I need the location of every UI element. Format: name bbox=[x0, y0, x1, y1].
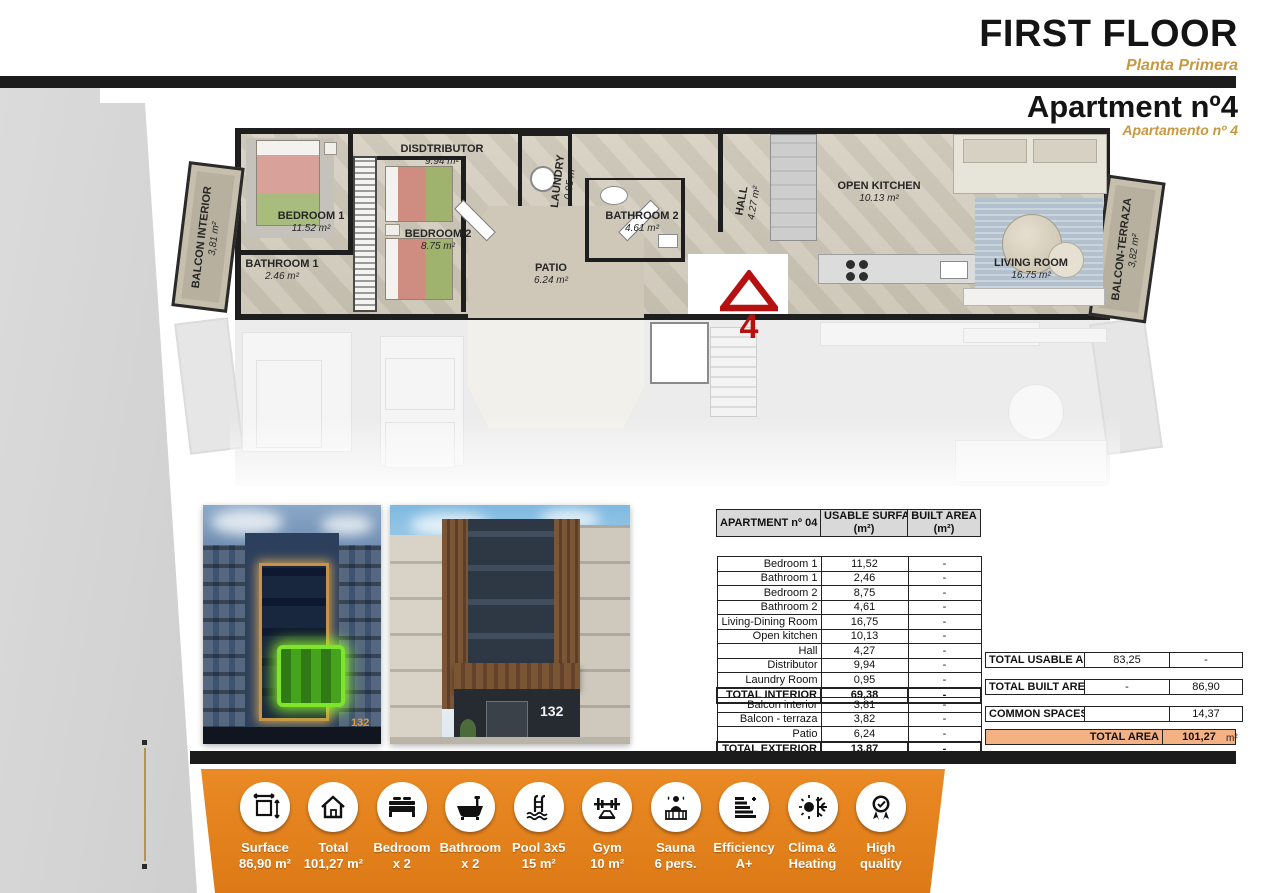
total-area-table: TOTAL AREA101,27 bbox=[985, 729, 1236, 745]
amenity-efficiency: EfficiencyA+ bbox=[710, 782, 778, 893]
total-area-unit: m² bbox=[1226, 733, 1238, 744]
row-built: - bbox=[908, 571, 981, 586]
row-built: - bbox=[908, 557, 981, 572]
row-usable: 6,24 bbox=[821, 727, 908, 742]
row-built: - bbox=[908, 673, 981, 688]
exterior-rooms-table: Balcon interior3,81- Balcon - terraza3,8… bbox=[716, 697, 982, 758]
amenity-label: Gym bbox=[593, 840, 622, 855]
flyer-page: FIRST FLOOR Planta Primera Apartment nº4… bbox=[0, 0, 1270, 893]
room-name: OPEN KITCHEN bbox=[837, 180, 920, 192]
ghost-tv-bench bbox=[963, 328, 1107, 343]
row-label: Bedroom 2 bbox=[717, 586, 821, 601]
room-label-patio: PATIO 6.24 m² bbox=[534, 262, 568, 286]
row-label: Laundry Room bbox=[717, 673, 821, 688]
building-photo-day: 132 bbox=[390, 505, 630, 744]
sofa-cushion bbox=[1033, 139, 1097, 163]
row-built: - bbox=[908, 712, 981, 727]
amenity-label: High bbox=[866, 840, 895, 855]
table-col-usable: USABLE SURFACE (m²) bbox=[821, 510, 908, 537]
room-label-bathroom1: BATHROOM 1 2.46 m² bbox=[245, 258, 318, 282]
floor-plan: 4 BALCON INTERIOR 3,81 m² BEDROOM 1 11.5… bbox=[180, 122, 1170, 504]
amenity-surface: Surface86,90 m² bbox=[231, 782, 299, 893]
amenity-label: Clima & bbox=[788, 840, 836, 855]
row-label: Bedroom 1 bbox=[717, 557, 821, 572]
side-building bbox=[580, 525, 630, 744]
room-label-open-kitchen: OPEN KITCHEN 10.13 m² bbox=[837, 180, 920, 204]
row-usable: 16,75 bbox=[821, 615, 908, 630]
table-row: Open kitchen10,13- bbox=[717, 629, 981, 644]
table-row: Bathroom 24,61- bbox=[717, 600, 981, 615]
wall bbox=[237, 250, 353, 255]
pavement bbox=[390, 737, 630, 744]
apartment-title: Apartment nº4 bbox=[1027, 89, 1238, 125]
ghost-fade bbox=[230, 417, 1120, 507]
header-divider-bar bbox=[0, 76, 1236, 88]
row-label: Patio bbox=[717, 727, 821, 742]
amenity-value: x 2 bbox=[461, 856, 479, 871]
wardrobe bbox=[353, 156, 377, 312]
table-row: COMMON SPACES14,37 bbox=[986, 707, 1243, 722]
table-row: Hall4,27- bbox=[717, 644, 981, 659]
nightstand bbox=[324, 142, 337, 155]
tv-bench bbox=[963, 288, 1105, 306]
amenity-sauna: Sauna6 pers. bbox=[642, 782, 710, 893]
amenity-bedroom: Bedroomx 2 bbox=[368, 782, 436, 893]
fold-mark-line bbox=[144, 748, 146, 861]
table-row: TOTAL BUILT AREA-86,90 bbox=[986, 680, 1243, 695]
col-usable-line1: USABLE SURFACE bbox=[824, 510, 904, 523]
fold-mark bbox=[142, 740, 147, 745]
row-built: - bbox=[908, 629, 981, 644]
col-usable-line2: (m²) bbox=[824, 523, 904, 536]
left-shade-panel bbox=[0, 88, 200, 893]
room-area: 10.13 m² bbox=[837, 193, 920, 205]
row-built: - bbox=[908, 658, 981, 673]
room-area: 8.75 m² bbox=[405, 241, 472, 253]
nightstand bbox=[385, 224, 400, 236]
amenity-value: 86,90 m² bbox=[239, 856, 291, 871]
row-built: - bbox=[908, 727, 981, 742]
interior-rooms-table: Bedroom 111,52- Bathroom 12,46- Bedroom … bbox=[716, 556, 982, 704]
row-label: Distributor bbox=[717, 658, 821, 673]
row-built: - bbox=[1170, 653, 1243, 668]
col-built-line1: BUILT AREA bbox=[911, 510, 977, 523]
kitchen-sink bbox=[940, 261, 968, 279]
cloud bbox=[211, 509, 283, 535]
hob-burner bbox=[859, 260, 868, 269]
page-title: FIRST FLOOR bbox=[979, 13, 1238, 56]
side-building bbox=[203, 545, 245, 744]
table-row: Balcon - terraza3,82- bbox=[717, 712, 981, 727]
amenity-label: Sauna bbox=[656, 840, 695, 855]
table-row: Bathroom 12,46- bbox=[717, 571, 981, 586]
amenity-label: Pool 3x5 bbox=[512, 840, 565, 855]
row-label: Bathroom 1 bbox=[717, 571, 821, 586]
row-usable: 10,13 bbox=[821, 629, 908, 644]
hob-burner bbox=[846, 260, 855, 269]
row-built: - bbox=[908, 698, 981, 713]
area-table-header: APARTMENT nº 04 USABLE SURFACE (m²) BUIL… bbox=[716, 509, 981, 537]
table-row: Bedroom 28,75- bbox=[717, 586, 981, 601]
row-label: Open kitchen bbox=[717, 629, 821, 644]
amenity-value: 6 pers. bbox=[655, 856, 697, 871]
pool-icon bbox=[514, 782, 564, 832]
room-name: DISDTRIBUTOR bbox=[401, 143, 484, 155]
ghost-bed bbox=[385, 358, 455, 410]
bedroom2-bed bbox=[385, 166, 453, 222]
amenity-label: Total bbox=[318, 840, 348, 855]
total-built-table: TOTAL BUILT AREA-86,90 bbox=[985, 679, 1243, 695]
row-built: - bbox=[908, 586, 981, 601]
amenity-value: quality bbox=[860, 856, 902, 871]
side-building bbox=[339, 545, 381, 744]
efficiency-icon bbox=[719, 782, 769, 832]
quality-badge-icon bbox=[856, 782, 906, 832]
row-usable: 8,75 bbox=[821, 586, 908, 601]
row-label: TOTAL AREA bbox=[986, 730, 1163, 745]
room-name: LIVING ROOM bbox=[994, 257, 1068, 269]
cloud bbox=[321, 515, 373, 535]
fold-mark bbox=[142, 864, 147, 869]
row-usable: 9,94 bbox=[821, 658, 908, 673]
sauna-icon bbox=[651, 782, 701, 832]
row-label: COMMON SPACES bbox=[986, 707, 1085, 722]
amenities-bar: Surface86,90 m² Total101,27 m² bbox=[195, 769, 945, 893]
room-name: BEDROOM 1 bbox=[278, 210, 345, 222]
table-col-built: BUILT AREA (m²) bbox=[908, 510, 981, 537]
surface-icon bbox=[240, 782, 290, 832]
unit-number: 4 bbox=[737, 308, 761, 347]
ghost-patio bbox=[468, 320, 644, 428]
row-label: Balcon - terraza bbox=[717, 712, 821, 727]
room-label-distributor: DISDTRIBUTOR 9.94 m² bbox=[401, 143, 484, 167]
house-icon bbox=[308, 782, 358, 832]
row-label: Bathroom 2 bbox=[717, 600, 821, 615]
room-label-bathroom2: BATHROOM 2 4.61 m² bbox=[605, 210, 678, 234]
table-row: Living-Dining Room16,75- bbox=[717, 615, 981, 630]
wall bbox=[718, 132, 723, 232]
row-usable: - bbox=[1085, 680, 1170, 695]
row-usable: 3,82 bbox=[821, 712, 908, 727]
room-area: 4.61 m² bbox=[605, 223, 678, 235]
sink bbox=[658, 234, 678, 248]
elevator-shaft bbox=[650, 322, 709, 384]
table-row: TOTAL USABLE AREA83,25- bbox=[986, 653, 1243, 668]
room-name: PATIO bbox=[535, 262, 567, 274]
row-usable: 2,46 bbox=[821, 571, 908, 586]
room-area: 6.24 m² bbox=[534, 275, 568, 287]
wood-canopy bbox=[454, 663, 580, 689]
total-area-row: TOTAL AREA101,27 bbox=[986, 730, 1236, 745]
footer-divider-bar bbox=[190, 751, 1236, 764]
row-usable: 83,25 bbox=[1085, 653, 1170, 668]
amenity-value: A+ bbox=[736, 856, 753, 871]
amenity-value: Heating bbox=[789, 856, 837, 871]
table-row: Laundry Room0,95- bbox=[717, 673, 981, 688]
amenity-bathroom: Bathroomx 2 bbox=[436, 782, 504, 893]
room-name: BATHROOM 2 bbox=[605, 210, 678, 222]
highlighted-apartment-box bbox=[277, 645, 345, 707]
toilet bbox=[600, 186, 628, 205]
table-row: Patio6,24- bbox=[717, 727, 981, 742]
amenity-quality: Highquality bbox=[847, 782, 915, 893]
table-row: Distributor9,94- bbox=[717, 658, 981, 673]
amenity-value: 15 m² bbox=[522, 856, 556, 871]
amenity-value: 10 m² bbox=[590, 856, 624, 871]
row-built: - bbox=[908, 615, 981, 630]
room-area: 9.94 m² bbox=[401, 156, 484, 168]
room-label-bedroom2: BEDROOM 2 8.75 m² bbox=[405, 228, 472, 252]
glass-facade bbox=[468, 519, 554, 667]
row-usable: 3,81 bbox=[821, 698, 908, 713]
row-built: 86,90 bbox=[1170, 680, 1243, 695]
row-label: Balcon interior bbox=[717, 698, 821, 713]
room-area: 16.75 m² bbox=[994, 270, 1068, 282]
room-area: 2.46 m² bbox=[245, 271, 318, 283]
col-built-line2: (m²) bbox=[911, 523, 977, 536]
amenity-label: Bedroom bbox=[373, 840, 430, 855]
row-label: Hall bbox=[717, 644, 821, 659]
row-label: TOTAL USABLE AREA bbox=[986, 653, 1085, 668]
row-usable: 0,95 bbox=[821, 673, 908, 688]
row-usable bbox=[1085, 707, 1170, 722]
amenity-gym: Gym10 m² bbox=[573, 782, 641, 893]
row-usable: 11,52 bbox=[821, 557, 908, 572]
table-row: Bedroom 111,52- bbox=[717, 557, 981, 572]
table-row: Balcon interior3,81- bbox=[717, 698, 981, 713]
row-built: - bbox=[908, 644, 981, 659]
clima-heating-icon bbox=[788, 782, 838, 832]
amenity-pool: Pool 3x515 m² bbox=[505, 782, 573, 893]
amenity-label: Bathroom bbox=[440, 840, 501, 855]
gym-icon bbox=[582, 782, 632, 832]
room-label-bedroom1: BEDROOM 1 11.52 m² bbox=[278, 210, 345, 234]
row-usable: 4,61 bbox=[821, 600, 908, 615]
amenity-clima: Clima &Heating bbox=[779, 782, 847, 893]
total-usable-table: TOTAL USABLE AREA83,25- bbox=[985, 652, 1243, 668]
row-label: TOTAL BUILT AREA bbox=[986, 680, 1085, 695]
kitchen-cabinet bbox=[770, 134, 817, 241]
unit-triangle-logo bbox=[720, 270, 778, 312]
room-name: BEDROOM 2 bbox=[405, 228, 472, 240]
row-label: Living-Dining Room bbox=[717, 615, 821, 630]
row-usable: 4,27 bbox=[821, 644, 908, 659]
side-building bbox=[390, 535, 442, 744]
common-spaces-table: COMMON SPACES14,37 bbox=[985, 706, 1243, 722]
amenity-label: Surface bbox=[241, 840, 289, 855]
row-built: - bbox=[908, 600, 981, 615]
row-value: 101,27 bbox=[1163, 730, 1236, 745]
street-number: 132 bbox=[540, 703, 563, 719]
room-label-living-room: LIVING ROOM 16.75 m² bbox=[994, 257, 1068, 281]
page-subtitle: Planta Primera bbox=[1126, 57, 1238, 75]
street bbox=[203, 727, 381, 744]
hob-burner bbox=[859, 272, 868, 281]
amenity-total: Total101,27 m² bbox=[299, 782, 367, 893]
hob-burner bbox=[846, 272, 855, 281]
sofa-cushion bbox=[963, 139, 1027, 163]
amenity-value: x 2 bbox=[393, 856, 411, 871]
bed-icon bbox=[377, 782, 427, 832]
bathtub-icon bbox=[445, 782, 495, 832]
room-area: 11.52 m² bbox=[278, 223, 345, 235]
street-number: 132 bbox=[351, 717, 369, 729]
building-photo-night: 132 bbox=[203, 505, 381, 744]
amenity-label: Efficiency bbox=[713, 840, 774, 855]
row-built: 14,37 bbox=[1170, 707, 1243, 722]
amenity-value: 101,27 m² bbox=[304, 856, 363, 871]
table-col-apartment: APARTMENT nº 04 bbox=[717, 510, 821, 537]
room-name: BATHROOM 1 bbox=[245, 258, 318, 270]
